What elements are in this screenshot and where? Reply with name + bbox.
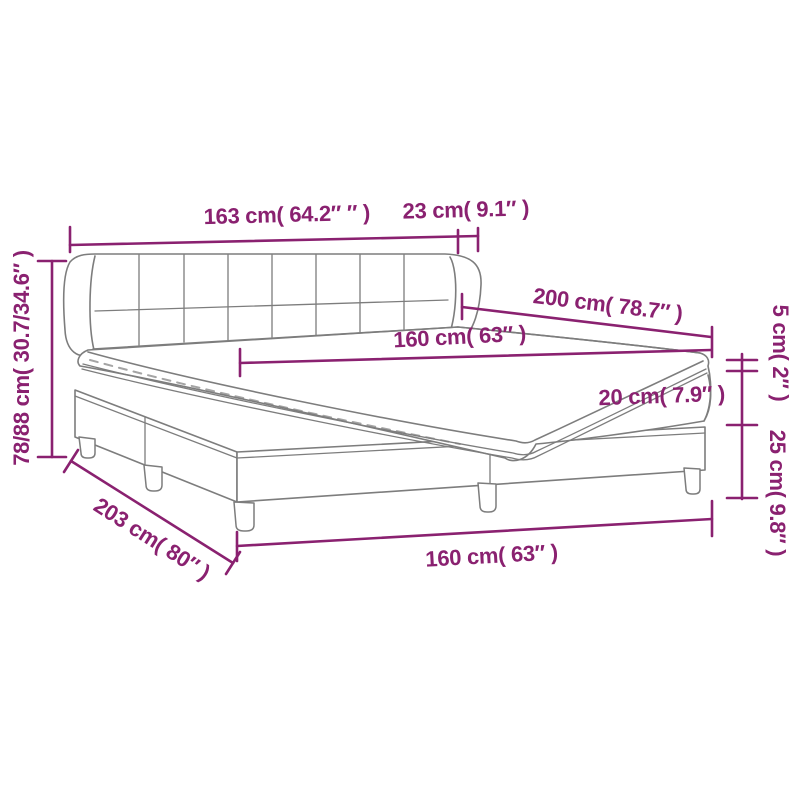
label-topper-height: 5 cm( 2″ ) [768, 305, 793, 402]
bed-leg [144, 465, 162, 491]
label-headboard-side: 23 cm( 9.1″ ) [402, 195, 529, 223]
label-base-width: 160 cm( 63″ ) [425, 539, 559, 571]
dim-total-height [38, 261, 66, 457]
label-headboard-width: 163 cm( 64.2″ ″ ) [203, 200, 370, 229]
bed-leg [478, 483, 496, 512]
label-mattress-height: 20 cm( 7.9″ ) [598, 381, 725, 410]
bed-leg [79, 437, 95, 458]
dim-height-stack [727, 354, 757, 499]
dimension-diagram: 163 cm( 64.2″ ″ ) 23 cm( 9.1″ ) 200 cm( … [0, 0, 800, 800]
bed-diagram-svg: 163 cm( 64.2″ ″ ) 23 cm( 9.1″ ) 200 cm( … [0, 0, 800, 800]
dim-headboard-width [70, 227, 478, 253]
bed-leg [234, 502, 254, 531]
label-bed-length: 200 cm( 78.7″ ) [532, 283, 684, 326]
bed-leg [684, 468, 700, 494]
label-base-height: 25 cm( 9.8″ ) [765, 430, 790, 556]
label-total-height: 78/88 cm( 30.7/34.6″ ) [9, 250, 34, 466]
